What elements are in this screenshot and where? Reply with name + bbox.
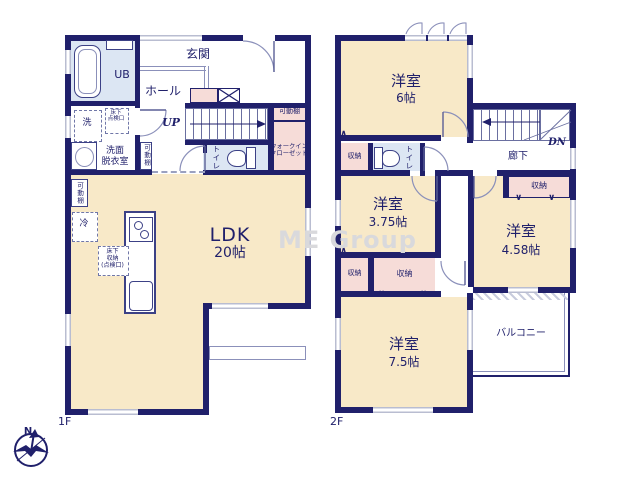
label-unit-bath: UB — [108, 69, 136, 82]
label-walkin-closet: ウォークイン クローゼット — [255, 143, 323, 158]
label-stairs-up: UP — [160, 117, 182, 130]
stair-diagonal — [540, 110, 571, 140]
stair-arrow-head — [482, 118, 491, 126]
label-shelf: 可動棚 — [142, 144, 150, 167]
label-toilet-2f: トイレ — [404, 145, 413, 171]
door-arc — [474, 176, 496, 198]
label-storage: 収納 — [374, 269, 435, 278]
label-storage: 収納 — [508, 181, 570, 190]
label-stairs-down: DN — [545, 137, 569, 149]
floorplan-canvas: ∧ ∧ ∨ ∨ ∨ ∨ — [0, 0, 640, 480]
label-entrance: 玄関 — [178, 47, 218, 61]
label-fridge: 冷 — [77, 219, 91, 230]
door-arc — [424, 147, 448, 171]
label-ldk: LDK — [195, 224, 265, 246]
door-arc — [412, 176, 437, 201]
label-shelf: 可動棚 — [75, 182, 83, 205]
casement-window-arc — [428, 23, 444, 34]
door-arc — [441, 261, 465, 285]
stair-arrow-head — [257, 120, 266, 128]
label-room75-size: 7.5帖 — [382, 355, 426, 369]
label-storage: 収納 — [341, 152, 368, 160]
label-line: (点検口) — [98, 262, 127, 269]
label-line: 脱衣室 — [99, 157, 131, 168]
casement-window-arc — [450, 23, 466, 34]
label-room75: 洋室 — [382, 336, 426, 354]
watermark: ME Group — [278, 226, 417, 254]
label-washroom: 洗面 脱衣室 — [99, 146, 131, 167]
label-hall: ホール — [138, 84, 188, 98]
label-room6-size: 6帖 — [384, 91, 428, 105]
label-floor1: 1F — [58, 416, 86, 429]
casement-window-arc — [406, 23, 422, 34]
label-floor2: 2F — [330, 416, 358, 429]
label-balcony: バルコニー — [486, 328, 556, 340]
label-line: 点検口 — [106, 116, 126, 122]
label-washer: 洗 — [80, 118, 94, 129]
label-underfloor-storage: 床下 収納 (点検口) — [98, 248, 127, 269]
label-room375: 洋室 — [366, 196, 410, 214]
label-line: クローゼット — [255, 150, 323, 157]
compass-north-label: N — [22, 426, 34, 438]
door-arc — [443, 112, 468, 137]
label-room458-size: 4.58帖 — [494, 243, 548, 257]
door-arc — [243, 41, 274, 72]
label-line: 洗面 — [99, 146, 131, 157]
label-toilet-1f: トイレ — [211, 145, 220, 171]
label-room6: 洋室 — [384, 73, 428, 91]
label-storage: 収納 — [341, 269, 368, 277]
label-underfloor-access: 床下 点検口 — [106, 110, 126, 123]
door-arc — [180, 146, 205, 171]
label-ldk-size: 20帖 — [195, 245, 265, 262]
label-corridor: 廊下 — [498, 151, 538, 163]
label-room458: 洋室 — [499, 223, 543, 241]
label-shelf: 可動棚 — [274, 107, 305, 115]
